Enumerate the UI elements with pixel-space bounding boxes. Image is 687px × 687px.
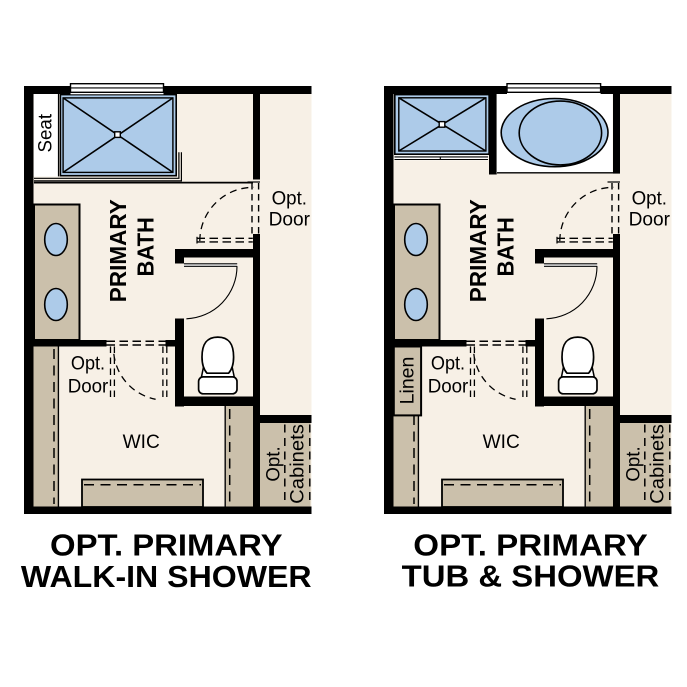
svg-text:Linen: Linen [397,357,419,405]
svg-text:WALK-IN SHOWER: WALK-IN SHOWER [21,560,312,594]
svg-text:TUB & SHOWER: TUB & SHOWER [402,560,660,594]
svg-text:Seat: Seat [36,113,57,152]
svg-text:OPT. PRIMARY: OPT. PRIMARY [413,528,647,562]
svg-text:OPT. PRIMARY: OPT. PRIMARY [50,528,283,562]
